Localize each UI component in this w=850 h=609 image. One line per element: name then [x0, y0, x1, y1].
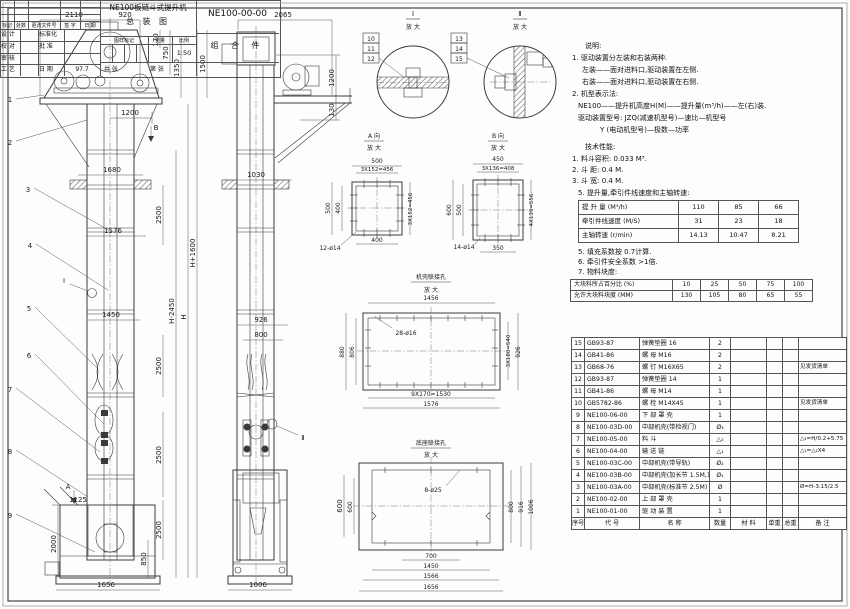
tech-heading: 技术性能:	[585, 143, 615, 151]
view-arrow-a: A	[66, 483, 71, 491]
bom-cell	[799, 470, 847, 482]
table-cell: 55	[785, 291, 813, 302]
bom-cell: 中部机壳(带导轨)	[640, 458, 710, 470]
detail-i-ref: Ⅰ	[63, 277, 65, 285]
notes-panel: 说明: 1. 驱动装置分左装和右装两种. 左装——面对进料口,驱动装置在左侧. …	[570, 40, 846, 300]
bom-cell: 11	[572, 386, 585, 398]
bom-cell	[767, 458, 783, 470]
bom-cell	[731, 422, 767, 434]
bom-cell: 14	[572, 350, 585, 362]
bom-header-cell: 单重	[767, 518, 783, 530]
bom-cell	[767, 410, 783, 422]
table-cell: 100	[785, 280, 813, 291]
part-type-label: 组 合 件	[196, 42, 279, 50]
dim-label: 500	[456, 204, 463, 216]
detail-i-marker	[88, 289, 97, 298]
dim-label: 3X180=540	[506, 334, 512, 367]
change-header-count: 处数	[14, 22, 28, 30]
bom-header-cell: 数量	[710, 518, 731, 530]
parts-list-table: 15GB93-87弹簧垫圈 162 14GB41-86螺 母 M162 13GB…	[571, 337, 847, 530]
dim-label: 3X136=408	[482, 166, 515, 172]
bom-cell	[767, 362, 783, 374]
bom-cell: GB93-87	[585, 338, 640, 350]
tech-line: 3. 斗 宽: 0.4 M.	[572, 177, 623, 185]
bom-cell: △₁=△₂X4	[799, 446, 847, 458]
bom-cell	[731, 374, 767, 386]
standardization-label: 标准化	[39, 31, 57, 39]
bom-header-cell: 材 料	[731, 518, 767, 530]
part-leader: 12	[367, 56, 375, 63]
bom-cell: 7	[572, 434, 585, 446]
bom-cell: GB41-86	[585, 350, 640, 362]
dim-label: 750	[162, 46, 170, 59]
bom-cell	[783, 350, 799, 362]
detail-subtitle: 放 大	[513, 23, 527, 31]
bom-cell	[783, 482, 799, 494]
bom-cell: 弹簧垫圈 14	[640, 374, 710, 386]
bom-cell	[783, 506, 799, 518]
capacity-speed-table: 提 升 量 (M³/h) 110 85 66 牵引件线速度 (M/S) 31 2…	[578, 200, 799, 243]
dim-label: 926	[515, 346, 522, 358]
bom-cell	[783, 458, 799, 470]
bom-cell: 1	[572, 506, 585, 518]
auditor-label: 审 核	[1, 55, 15, 63]
notes-heading: 说明:	[585, 42, 601, 50]
bom-cell: 1	[710, 494, 731, 506]
bom-cell: 6	[572, 446, 585, 458]
tech-line: 6. 牵引件安全系数 >1倍.	[578, 258, 658, 266]
bom-cell	[731, 470, 767, 482]
dim-label: 450	[492, 156, 504, 163]
bom-cell: 13	[572, 362, 585, 374]
bom-cell: △₂	[710, 434, 731, 446]
bom-cell	[731, 386, 767, 398]
boot-section	[44, 487, 160, 584]
detail-ii-ref: Ⅱ	[301, 434, 304, 442]
table-cell: 65	[757, 291, 785, 302]
dim-label: 600	[446, 204, 453, 216]
dim-label: 1680	[103, 166, 121, 174]
detail-title: 机壳联接孔	[416, 273, 446, 281]
table-cell: 牵引件线速度 (M/S)	[579, 215, 679, 229]
bom-cell	[783, 398, 799, 410]
bom-cell	[767, 446, 783, 458]
dim-label: H+1600	[189, 239, 197, 268]
bom-cell: 1	[710, 410, 731, 422]
bom-cell: 2	[710, 350, 731, 362]
bom-cell	[767, 434, 783, 446]
table-cell: 31	[679, 215, 719, 229]
detail-subtitle: 放 大	[406, 23, 420, 31]
drawing-title-line1: NE100板链斗式提升机	[100, 4, 196, 12]
bom-cell	[783, 494, 799, 506]
bom-cell	[783, 374, 799, 386]
bom-cell: 中部机壳(标准节 2.5M)	[640, 482, 710, 494]
dim-label: 3X152=456	[408, 192, 414, 225]
bom-cell: 12	[572, 374, 585, 386]
bom-cell: 5	[572, 458, 585, 470]
wall-bracket-left	[222, 180, 237, 189]
part-leader: 9	[8, 512, 12, 520]
dim-label: 2500	[155, 206, 163, 224]
bom-cell: 螺 钉 M16X65	[640, 362, 710, 374]
detail-title: 底座联接孔	[416, 439, 446, 447]
stamp-mark-label: 图样标记	[100, 37, 148, 45]
checker-label: 校 对	[1, 43, 15, 51]
date-value: 97.7	[65, 66, 99, 74]
dim-label: 500	[325, 202, 332, 214]
table-cell: 提 升 量 (M³/h)	[579, 201, 679, 215]
bom-cell: Ø₂	[710, 458, 731, 470]
bom-cell	[783, 386, 799, 398]
bom-cell: 15	[572, 338, 585, 350]
bom-cell	[783, 338, 799, 350]
bom-cell: 料 斗	[640, 434, 710, 446]
designer-label: 设 计	[1, 31, 15, 39]
part-leader: 6	[27, 352, 32, 360]
bom-cell: NE100-02-00	[585, 494, 640, 506]
bom-cell	[731, 398, 767, 410]
bom-cell	[731, 338, 767, 350]
bom-cell: 中部机壳(带检视门)	[640, 422, 710, 434]
process-label: 工 艺	[1, 66, 15, 74]
table-cell: 主轴转速 (r/min)	[579, 229, 679, 243]
bom-cell: 10	[572, 398, 585, 410]
bom-cell: 4	[572, 470, 585, 482]
bom-cell	[783, 434, 799, 446]
dim-label: 850	[140, 552, 148, 565]
bom-cell: 螺 栓 M14X45	[640, 398, 710, 410]
dim-label: 600	[347, 501, 354, 513]
detail-subtitle: 放 大	[424, 286, 438, 294]
bom-cell: 8	[572, 422, 585, 434]
view-title: A 向	[368, 132, 380, 140]
bom-cell: NE100-03D-00	[585, 422, 640, 434]
bom-cell	[767, 470, 783, 482]
bom-cell: 见发货清单	[799, 398, 847, 410]
table-cell: 允许大块料块度 (MM)	[571, 291, 673, 302]
dim-label: 130	[328, 103, 336, 116]
bom-cell	[799, 506, 847, 518]
dim-label: 2000	[50, 535, 58, 553]
dim-label: 2500	[155, 521, 163, 539]
bom-cell	[767, 398, 783, 410]
dim-label: 1656	[423, 584, 438, 591]
bom-cell: 1	[710, 506, 731, 518]
drawing-title-line2: 总 装 图	[100, 18, 196, 26]
main-elevation-view: 2110 920 170 750 1350 1500 1200 B 1680 2…	[8, 11, 207, 590]
table-cell: 66	[759, 201, 799, 215]
dim-label: 1450	[423, 563, 438, 570]
bom-cell: 螺 母 M14	[640, 386, 710, 398]
bom-cell: 弹簧垫圈 16	[640, 338, 710, 350]
bom-cell: 2	[710, 362, 731, 374]
bom-cell	[731, 446, 767, 458]
bom-cell	[767, 422, 783, 434]
bom-cell: NE100-06-00	[585, 410, 640, 422]
part-leader: 7	[8, 386, 12, 394]
part-leader: 14	[455, 46, 463, 53]
note-line: 1. 驱动装置分左装和右装两种.	[572, 54, 667, 62]
dim-label: 400	[335, 202, 342, 214]
view-title: B 向	[492, 132, 504, 140]
bom-cell: NE100-03A-00	[585, 482, 640, 494]
bom-cell: Ø₁	[710, 470, 731, 482]
bom-cell: 3	[572, 482, 585, 494]
side-elevation-view: 2065 1200 130 1030 926 800 Ⅱ 600 1006	[222, 11, 352, 590]
bucket-zone	[92, 354, 123, 390]
sheet-total-label: 共 张	[104, 66, 118, 74]
wall-bracket-right	[134, 180, 151, 189]
base-flange-detail: 底座联接孔 放 大 8-ø25 600 800 916 1006 700 145…	[347, 439, 535, 591]
dim-label: 600	[336, 499, 344, 512]
bom-cell: GB68-76	[585, 362, 640, 374]
bom-cell	[799, 350, 847, 362]
bom-cell	[767, 482, 783, 494]
scale-label: 比例	[172, 37, 196, 45]
bom-cell	[767, 350, 783, 362]
boot-section	[228, 470, 292, 584]
dim-label: 800	[254, 331, 267, 339]
casing-flange-detail: 机壳联接孔 放 大 1456 28-ø16 880 806 3X180=540 …	[339, 273, 522, 408]
weight-label: 重量	[148, 37, 172, 45]
bom-cell: 1	[710, 374, 731, 386]
bom-cell: GB41-86	[585, 386, 640, 398]
bom-cell: 上 部 罩 壳	[640, 494, 710, 506]
hole-callout: 8-ø25	[424, 487, 441, 494]
dim-label: 880	[339, 346, 346, 358]
note-line: 驱动装置型号: JZQ(减速机型号)—速比—机型号	[578, 114, 726, 122]
bom-cell	[799, 338, 847, 350]
note-line: Y (电动机型号)—极数—功率	[600, 126, 689, 134]
table-cell: 110	[679, 201, 719, 215]
change-header-mark: 标记	[0, 22, 14, 30]
part-leader: 8	[8, 448, 12, 456]
bom-cell	[799, 494, 847, 506]
note-line: NE100——提升机高度H(M)——提升量(m³/h)——左(右)装.	[578, 102, 766, 110]
detail-view-i: Ⅰ 放 大 10 11 12	[363, 10, 449, 118]
dim-label: 1656	[97, 581, 115, 589]
dim-label: 1500	[199, 55, 207, 73]
bom-cell	[767, 506, 783, 518]
dim-label: 1006	[249, 581, 267, 589]
bom-cell: NE100-05-00	[585, 434, 640, 446]
approver-label: 批 准	[39, 43, 53, 51]
bom-cell	[767, 494, 783, 506]
part-leader: 10	[367, 36, 375, 43]
dim-label: 1456	[423, 295, 438, 302]
bom-cell: NE100-01-00	[585, 506, 640, 518]
bom-cell	[767, 338, 783, 350]
detail-title: Ⅰ	[412, 10, 414, 18]
dim-label: 1006	[528, 499, 535, 514]
tech-line: 1. 料斗容积: 0.033 M³.	[572, 155, 647, 163]
bom-cell	[731, 482, 767, 494]
dim-label: 2500	[155, 446, 163, 464]
bom-cell	[783, 470, 799, 482]
section-view-b: B 向 放 大 450 3X136=408 600 500 350 4X139=…	[446, 132, 535, 252]
bom-cell: 螺 母 M16	[640, 350, 710, 362]
view-subtitle: 放 大	[367, 144, 381, 152]
bom-cell: 驱 动 装 置	[640, 506, 710, 518]
bom-cell	[731, 458, 767, 470]
dim-label: 2500	[155, 357, 163, 375]
dim-label: H-2450	[168, 298, 176, 324]
table-cell: 130	[673, 291, 701, 302]
tech-line: 2. 斗 距: 0.4 M.	[572, 166, 623, 174]
table-cell: 14.13	[679, 229, 719, 243]
bom-cell: Ø₃	[710, 422, 731, 434]
dim-label: 1576	[104, 227, 122, 235]
bom-cell: GB5782-86	[585, 398, 640, 410]
drawing-sheet: 2110 920 170 750 1350 1500 1200 B 1680 2…	[0, 0, 850, 609]
bom-cell: 1	[710, 386, 731, 398]
bom-cell	[799, 458, 847, 470]
table-cell: 50	[729, 280, 757, 291]
bom-cell: Ø	[710, 482, 731, 494]
bom-cell: 下 部 罩 壳	[640, 410, 710, 422]
bom-cell: 9	[572, 410, 585, 422]
bom-cell	[731, 494, 767, 506]
bom-cell	[799, 386, 847, 398]
bom-cell	[783, 410, 799, 422]
hole-callout: 12-ø14	[319, 245, 340, 252]
dim-label: 1450	[102, 311, 120, 319]
bom-cell	[731, 362, 767, 374]
wall-bracket-left	[70, 180, 87, 189]
note-line: 2. 机型表示法:	[572, 90, 618, 98]
bom-cell: △₁	[710, 446, 731, 458]
hole-callout: 14-ø14	[453, 244, 474, 251]
part-leader: 4	[28, 242, 33, 250]
part-leader: 1	[8, 96, 12, 104]
tech-line: 7. 物料块度:	[578, 268, 617, 276]
sheet-number-label: 第 张	[150, 66, 164, 74]
dim-label: 700	[425, 553, 437, 560]
dim-label: H	[180, 314, 188, 319]
table-cell: 75	[757, 280, 785, 291]
detail-ii-marker	[267, 419, 277, 429]
bom-header-cell: 总重	[783, 518, 799, 530]
dim-label: 1200	[328, 69, 336, 87]
bom-cell	[783, 422, 799, 434]
bom-cell	[731, 410, 767, 422]
bom-cell: NE100-03C-00	[585, 458, 640, 470]
bom-header-cell: 代 号	[585, 518, 640, 530]
dim-label: 806	[349, 346, 356, 358]
section-view-a: A 向 放 大 500 3X152=456 500 400 400 3X152=…	[319, 132, 414, 252]
view-arrow-b: B	[154, 124, 159, 132]
bom-cell	[731, 350, 767, 362]
dim-label: 1030	[247, 171, 265, 179]
hole-callout: 28-ø16	[395, 330, 416, 337]
dim-label: 1566	[423, 573, 438, 580]
tech-line: 5. 提升量,牵引件线速度和主轴转速:	[578, 189, 690, 197]
dim-label: 4X139=556	[529, 193, 535, 226]
bom-cell	[731, 434, 767, 446]
part-leader: 5	[27, 305, 31, 313]
bom-cell: 中部机壳(加长节 1.5M,1M)	[640, 470, 710, 482]
change-header-sign: 签 字	[60, 22, 80, 30]
table-cell: 85	[719, 201, 759, 215]
table-cell: 80	[729, 291, 757, 302]
bom-cell	[783, 362, 799, 374]
part-leader: 11	[367, 46, 375, 53]
scale-value: 1:50	[172, 49, 196, 57]
table-cell: 105	[701, 291, 729, 302]
part-leader: 2	[8, 139, 12, 147]
bom-cell: Ø=H-3.15/2.5	[799, 482, 847, 494]
chain-rollers	[243, 420, 269, 456]
tech-line: 5. 填充系数按 0.7计算.	[578, 248, 652, 256]
dim-label: 800	[508, 501, 515, 513]
table-cell: 10.47	[719, 229, 759, 243]
table-cell: 25	[701, 280, 729, 291]
dim-label: 400	[371, 237, 383, 244]
table-cell: 10	[673, 280, 701, 291]
date-label: 日 期	[39, 66, 53, 74]
dim-label: 1200	[121, 109, 139, 117]
detail-view-ii: Ⅱ 放 大 13 14 15	[451, 10, 556, 118]
bom-cell: NE100-04-00	[585, 446, 640, 458]
bom-header-cell: 序号	[572, 518, 585, 530]
bom-cell	[767, 374, 783, 386]
drawing-number: NE100-00-00	[196, 10, 279, 18]
bom-cell: 2	[710, 338, 731, 350]
bom-header-cell: 备 注	[799, 518, 847, 530]
view-subtitle: 放 大	[491, 144, 505, 152]
note-line: 右装——面对进料口,驱动装置在右侧.	[582, 78, 698, 86]
bom-cell: 见发货清单	[799, 362, 847, 374]
bom-cell: 2	[572, 494, 585, 506]
bom-cell	[799, 422, 847, 434]
wall-bracket-right	[274, 180, 289, 189]
bom-cell: 1	[710, 398, 731, 410]
table-cell: 大块料所占百分比 (%)	[571, 280, 673, 291]
bom-cell	[783, 446, 799, 458]
part-leader: 13	[455, 36, 463, 43]
bom-cell: GB93-87	[585, 374, 640, 386]
change-header-date: 日 期	[80, 22, 100, 30]
dim-label: 500	[371, 158, 383, 165]
bom-cell	[767, 386, 783, 398]
table-cell: 8.21	[759, 229, 799, 243]
bom-cell	[799, 410, 847, 422]
bom-cell	[731, 506, 767, 518]
bom-cell: 输 送 链	[640, 446, 710, 458]
dim-label: 9X170=1530	[411, 391, 451, 398]
bom-cell: △₂=H/0.2+5.75	[799, 434, 847, 446]
change-header-doc: 更改文件号	[28, 22, 60, 30]
bom-cell: NE100-03B-00	[585, 470, 640, 482]
part-leader: 15	[455, 56, 463, 63]
note-line: 左装——面对进料口,驱动装置在左侧.	[582, 66, 698, 74]
dim-label: 1576	[423, 401, 438, 408]
bom-cell	[799, 374, 847, 386]
dim-label: 350	[492, 245, 504, 252]
lump-size-table: 大块料所占百分比 (%) 10 25 50 75 100 允许大块料块度 (MM…	[570, 279, 813, 302]
part-leader: 3	[26, 186, 30, 194]
dim-label: 926	[254, 316, 268, 324]
dim-label: 916	[518, 501, 525, 513]
dim-label: 1125	[69, 496, 87, 504]
dim-label: 3X152=456	[361, 167, 394, 173]
bom-header-cell: 名 称	[640, 518, 710, 530]
table-cell: 18	[759, 215, 799, 229]
table-cell: 23	[719, 215, 759, 229]
detail-title: Ⅱ	[518, 10, 521, 18]
